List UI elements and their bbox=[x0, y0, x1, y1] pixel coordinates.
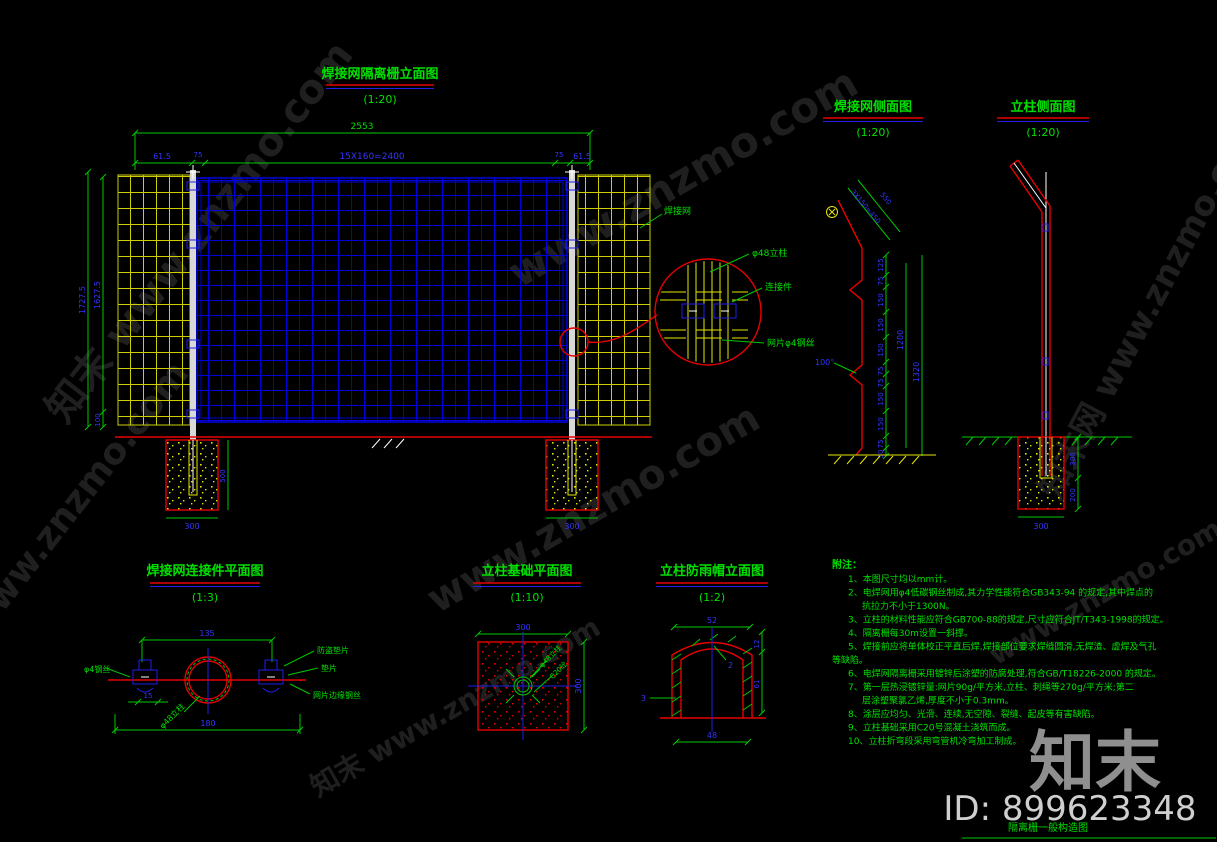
dim-seg: 150 bbox=[877, 343, 885, 356]
leader-line bbox=[184, 696, 200, 712]
dim-arm-seg: 3X150=450 bbox=[849, 188, 882, 225]
dim-chain-3: 75 bbox=[555, 151, 564, 159]
ground-hatch bbox=[966, 437, 1012, 445]
view-scale: (1:10) bbox=[510, 591, 543, 604]
mesh-panel-right bbox=[578, 175, 650, 425]
view-scale: (1:20) bbox=[856, 126, 889, 139]
cad-sheet: 知末 www.znzmo.com www.znzmo.com 知末 www.zn… bbox=[0, 0, 1217, 842]
notes-title: 附注： bbox=[832, 558, 862, 571]
detail-label-connector: 连接件 bbox=[765, 281, 792, 293]
dim-embed: 300 bbox=[1069, 452, 1077, 465]
note-line: 5、焊接前应将单体校正平直后焊,焊接部位要求焊缝圆滑,无焊渣、虚焊及气孔 bbox=[848, 641, 1156, 653]
arm-centerline bbox=[1014, 163, 1046, 208]
dim-wall: 3 bbox=[641, 694, 646, 703]
dim-seg: 75 bbox=[877, 367, 885, 376]
detail-content bbox=[660, 260, 748, 365]
note-line: 1、本图尺寸均以mm计。 bbox=[848, 573, 952, 585]
dim-overall-inner: 1200 bbox=[896, 330, 905, 350]
dim-seg: 150 bbox=[877, 392, 885, 405]
note-line: 7、第一层热浸镀锌量:网片90g/平方米,立柱、刺绳等270g/平方米;第二 bbox=[848, 681, 1134, 693]
dim-seg: 50 bbox=[877, 450, 885, 459]
post-center-mark bbox=[565, 165, 579, 179]
note-line: 4、隔离栅每30m设置一斜撑。 bbox=[848, 627, 973, 639]
view-post-side: 立柱侧面图 (1:20) 300 200 300 bbox=[962, 99, 1132, 531]
label-washer: 垫片 bbox=[321, 663, 337, 673]
bolt-assembly-right bbox=[259, 660, 283, 692]
dim-right-upper: 12 bbox=[753, 640, 761, 649]
view-title: 焊接网连接件平面图 bbox=[146, 563, 263, 579]
dim-overall-outer: 1320 bbox=[912, 362, 921, 382]
view-title: 焊接网侧面图 bbox=[834, 99, 912, 115]
dim-chain-4: 61.5 bbox=[573, 152, 591, 161]
leader-line bbox=[290, 684, 310, 694]
view-title: 立柱防雨帽立面图 bbox=[660, 563, 764, 579]
dim-small: 15 bbox=[144, 692, 153, 700]
label-wire: φ4钢丝 bbox=[84, 664, 110, 674]
view-scale: (1:3) bbox=[192, 591, 218, 604]
leader-line bbox=[284, 651, 314, 666]
view-scale: (1:20) bbox=[1026, 126, 1059, 139]
leader-line bbox=[288, 668, 318, 675]
note-line: 3、立柱的材料性能应符合GB700-88的规定,尺寸应符合JT/T343-199… bbox=[848, 614, 1169, 626]
view-connector-plan: 焊接网连接件平面图 (1:3) 135 φ4钢丝 防盗垫片 bbox=[84, 563, 361, 734]
barbed-wire-cross bbox=[829, 209, 835, 215]
detail-label-wire: 网片φ4钢丝 bbox=[767, 337, 815, 349]
view-title: 焊接网隔离栅立面图 bbox=[321, 66, 438, 82]
view-mesh-side: 焊接网侧面图 (1:20) 3X150=450 550 100° 125 75 … bbox=[815, 99, 936, 464]
leader-line bbox=[834, 363, 856, 373]
bolt-assembly-left bbox=[133, 660, 157, 692]
foundation bbox=[1018, 437, 1064, 509]
leader-line bbox=[710, 254, 749, 272]
dim-top: 300 bbox=[515, 623, 530, 632]
sheet-title: 隔离栅一般构造图 bbox=[1008, 821, 1088, 834]
mesh-label: 焊接网 bbox=[664, 205, 691, 217]
dim-seg: 75 bbox=[877, 440, 885, 449]
label-anti-theft-washer: 防盗垫片 bbox=[317, 645, 349, 655]
bolt-clip bbox=[263, 688, 279, 692]
dim-bottom: 180 bbox=[200, 719, 215, 728]
dim-right: 300 bbox=[574, 678, 583, 693]
note-line: 抗拉力不小于1300N。 bbox=[862, 600, 955, 612]
dim-foundation-depth: 500 bbox=[219, 469, 227, 482]
dim-thickness: 2 bbox=[728, 661, 733, 670]
label-edge-wire: 网片边缘钢丝 bbox=[313, 690, 361, 700]
mesh-profile bbox=[838, 200, 862, 455]
dim-chain-1: 75 bbox=[194, 151, 203, 159]
dim-foundation-width: 300 bbox=[184, 522, 199, 531]
dim-seg: 75 bbox=[877, 277, 885, 286]
mesh-panel-left bbox=[118, 175, 190, 425]
mesh-panel-center bbox=[197, 178, 567, 422]
ground-hatch bbox=[372, 439, 404, 448]
note-line: 层涂塑聚氯乙烯,厚度不小于0.3mm。 bbox=[862, 695, 1014, 707]
note-line: 6、电焊网隔离栅采用镀锌后涂塑的防腐处理,符合GB/T18226-2000 的规… bbox=[848, 668, 1161, 680]
dim-seg: 75 bbox=[877, 379, 885, 388]
view-scale: (1:2) bbox=[699, 591, 725, 604]
dim-left-bottom: 100 bbox=[94, 413, 102, 426]
dim-chain-2: 15X160=2400 bbox=[339, 152, 405, 162]
dim-width: 300 bbox=[1033, 522, 1048, 531]
note-line: 9、立柱基础采用C20号混凝土浇筑而成。 bbox=[848, 722, 1015, 734]
dim-top: 135 bbox=[199, 629, 214, 638]
dim-below: 200 bbox=[1069, 488, 1077, 501]
dim-arm-total: 550 bbox=[878, 191, 893, 206]
note-line: 2、电焊网用φ4低碳钢丝制成,其力学性能符合GB343-94 的规定,其中焊点的 bbox=[848, 587, 1153, 599]
note-line: 等缺陷。 bbox=[832, 654, 868, 666]
bolt-head bbox=[265, 660, 277, 670]
view-title: 立柱基础平面图 bbox=[481, 563, 572, 579]
dim-left-outer: 1727.5 bbox=[78, 286, 87, 314]
fence-post-left bbox=[190, 170, 196, 440]
dim-seg: 150 bbox=[877, 318, 885, 331]
fence-post-right bbox=[569, 170, 575, 440]
dim-seg: 150 bbox=[877, 293, 885, 306]
view-scale: (1:20) bbox=[363, 93, 396, 106]
view-title: 立柱侧面图 bbox=[1010, 99, 1075, 115]
leader-line bbox=[714, 646, 726, 660]
bolt-head bbox=[139, 660, 151, 670]
detail-post-lines bbox=[688, 260, 728, 365]
dim-right-lower: 61 bbox=[753, 680, 761, 689]
dim-chain-0: 61.5 bbox=[153, 152, 171, 161]
dim-total: 2553 bbox=[351, 122, 374, 132]
dim-bottom: 48 bbox=[707, 731, 717, 740]
detail-label-post: φ48立柱 bbox=[752, 247, 787, 259]
dim-seg: 150 bbox=[877, 417, 885, 430]
angle-label: 100° bbox=[815, 358, 834, 367]
foundation-left bbox=[166, 440, 218, 510]
drawing-canvas: 知末 www.znzmo.com www.znzmo.com 知末 www.zn… bbox=[0, 0, 1217, 842]
note-line: 8、涂层应均匀、光滑、连续,无空隙、裂缝、起皮等有害缺陷。 bbox=[848, 708, 1100, 720]
label-post: φ48立柱 bbox=[157, 701, 186, 730]
dim-top: 52 bbox=[707, 616, 717, 625]
dim-foundation-width: 300 bbox=[564, 522, 579, 531]
note-line: 10、立柱折弯段采用弯管机冷弯加工制成。 bbox=[848, 735, 1021, 747]
dim-left-inner: 1627.5 bbox=[93, 281, 102, 309]
detail-circle bbox=[655, 259, 761, 365]
view-rain-cap: 立柱防雨帽立面图 (1:2) 52 3 12 61 2 48 bbox=[641, 563, 768, 745]
dim-seg: 125 bbox=[877, 258, 885, 271]
